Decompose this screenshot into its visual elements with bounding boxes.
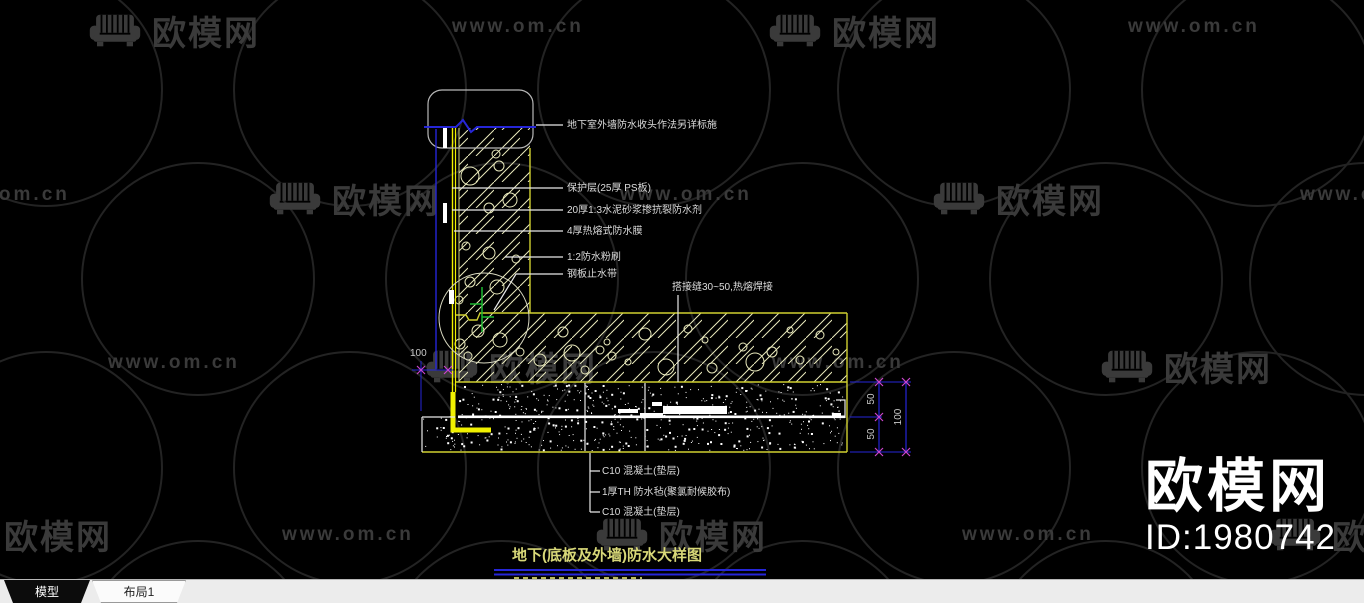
callout-membrane: 4厚热熔式防水膜 [567,224,643,237]
callout-waterstop: 钢板止水带 [567,267,617,280]
callout-plaster: 1:2防水粉刷 [567,250,621,263]
callout-felt: 1厚TH 防水毡(聚氯耐候胶布) [602,485,730,498]
brand-id: ID:1980742 [1145,520,1336,555]
callout-cushion-2: C10 混凝土(垫层) [602,505,680,518]
brand-name: 欧模网 [1145,458,1336,516]
dim-right-50a: 50 [866,393,877,405]
callout-mortar: 20厚1:3水泥砂浆掺抗裂防水剂 [567,203,702,216]
callout-cushion-1: C10 混凝土(垫层) [602,464,680,477]
dim-right-50b: 50 [866,428,877,440]
callout-lap-joint: 搭接缝30~50,热熔焊接 [672,280,773,293]
tab-model[interactable]: 模型 [4,580,90,603]
tab-layout1[interactable]: 布局1 [92,580,186,603]
callout-protection-layer: 保护层(25厚 PS板) [567,181,651,194]
layout-tab-bar: 模型 布局1 [0,579,1364,603]
protection-board-tick [443,128,447,148]
callout-wall-top: 地下室外墙防水收头作法另详标施 [567,118,717,131]
drawing-title: 地下(底板及外墙)防水大样图 [512,546,702,564]
cad-viewport[interactable]: 欧模网www.om.cn欧模网www.om.cnwww.om.cn欧模网www.… [0,0,1364,603]
title-underline [494,569,766,576]
brand-overlay: 欧模网 ID:1980742 [1145,458,1336,555]
bottom-leader-bracket [590,453,600,512]
dim-right-100: 100 [893,408,904,425]
dim-wall-100: 100 [410,348,427,359]
